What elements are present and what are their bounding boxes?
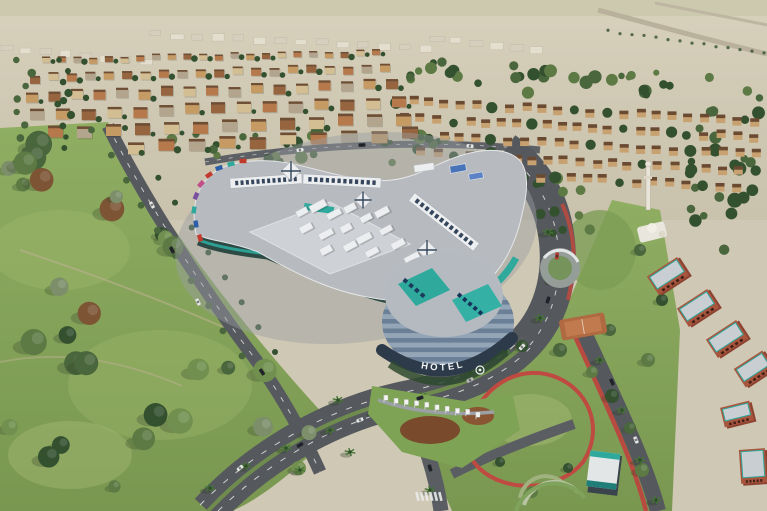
tree-highlight <box>629 424 634 429</box>
apartment-roof <box>396 114 411 117</box>
villa-roof <box>573 122 582 126</box>
villa-roof <box>583 174 592 178</box>
flag <box>425 402 429 407</box>
apartment-roof <box>159 70 169 72</box>
tree-highlight <box>60 438 68 446</box>
apartment-roof <box>251 83 263 85</box>
distant-block <box>295 39 306 44</box>
apartment-roof <box>141 72 151 74</box>
villa-roof <box>536 174 545 178</box>
apartment-roof <box>42 57 50 59</box>
window-dash <box>272 178 275 183</box>
apartment-roof <box>139 90 151 92</box>
tree-highlight <box>8 421 15 428</box>
car <box>296 148 303 152</box>
roadside-tree <box>108 152 115 159</box>
apartment-roof <box>168 54 176 56</box>
apartment-roof <box>366 98 380 100</box>
distant-tree <box>642 34 645 37</box>
apartment-roof <box>274 85 286 87</box>
apartment-roof <box>222 119 237 122</box>
street-tree <box>324 125 331 132</box>
villa-roof <box>559 155 568 159</box>
street-tree <box>77 77 83 83</box>
street-tree <box>236 145 241 150</box>
forest-tree <box>425 62 437 74</box>
street-tree <box>261 72 267 78</box>
apartment-roof <box>196 69 206 71</box>
street-tree <box>83 95 89 101</box>
villa-roof <box>752 149 761 153</box>
avenue-tree <box>63 134 68 139</box>
apartment-roof <box>164 122 179 125</box>
window-dash <box>240 180 243 185</box>
street-tree <box>81 58 87 64</box>
apartment-roof <box>340 100 354 102</box>
apartment-roof <box>219 136 235 139</box>
street-tree <box>151 76 156 81</box>
villa-roof <box>537 104 546 108</box>
villa-roof <box>481 119 490 123</box>
distant-tree <box>738 48 741 51</box>
apartment-roof <box>85 72 95 74</box>
villa-tree <box>619 125 627 133</box>
villa-tree <box>570 105 579 114</box>
villa-roof <box>497 118 506 122</box>
tree-highlight <box>58 280 66 288</box>
window-dash <box>256 179 259 184</box>
window-dash <box>314 177 317 182</box>
apartment-roof <box>380 64 390 66</box>
apartment-roof <box>402 126 418 129</box>
apartment-roof <box>122 71 132 73</box>
villa-roof <box>415 113 424 117</box>
villa-roof <box>570 141 579 145</box>
villa-roof <box>632 180 641 184</box>
apartment-roof <box>104 72 114 74</box>
tree-highlight <box>154 406 165 417</box>
distant-block <box>20 48 31 54</box>
roadside-tree <box>123 177 130 184</box>
apartment-roof <box>152 54 160 56</box>
apartment-roof <box>309 51 317 53</box>
tree-highlight <box>88 305 98 315</box>
flag <box>456 408 460 413</box>
villa-roof <box>715 183 724 187</box>
street-tree <box>286 91 292 97</box>
villa-roof <box>567 173 576 177</box>
forest-tree <box>705 73 714 82</box>
avenue-tree <box>54 101 61 108</box>
villa-roof <box>472 100 481 104</box>
avenue-tree <box>21 121 28 128</box>
street-tree <box>365 52 370 57</box>
window-dash <box>749 480 751 483</box>
distant-block <box>450 37 461 43</box>
car-glass <box>469 145 471 148</box>
street-tree <box>199 110 204 115</box>
palm-crown <box>620 408 623 411</box>
distant-tree <box>606 29 609 32</box>
window-dash <box>355 179 358 184</box>
car-glass <box>299 149 301 152</box>
apartment-roof <box>325 52 333 54</box>
distant-block <box>192 34 203 40</box>
villa-tree <box>697 180 708 191</box>
apartment-roof <box>278 52 286 54</box>
villa-roof <box>537 137 546 141</box>
hotel-logo-dot <box>479 369 482 372</box>
villa-roof <box>467 117 476 121</box>
window-dash <box>262 179 265 184</box>
villa-roof <box>527 157 536 161</box>
apartment-roof <box>121 57 129 59</box>
apartment-roof <box>185 103 199 105</box>
apartment-roof <box>177 70 187 72</box>
distant-tree <box>666 38 669 41</box>
villa-roof <box>732 184 741 188</box>
roadside-tree <box>272 349 278 355</box>
buffer-tree <box>585 224 595 234</box>
window-dash <box>246 180 249 185</box>
street-tree <box>398 85 404 91</box>
apartment-roof <box>105 56 113 58</box>
distant-tree <box>726 46 729 49</box>
brick-block <box>677 288 722 329</box>
tree-highlight <box>178 411 189 422</box>
apartment-roof <box>309 117 324 120</box>
apartment-roof <box>94 90 106 92</box>
window-dash <box>337 179 340 184</box>
distant-tree <box>762 51 765 54</box>
street-tree <box>381 52 386 57</box>
villa-roof <box>619 111 628 115</box>
flag <box>404 400 408 405</box>
window-dash <box>757 479 759 482</box>
window-dash <box>326 178 329 183</box>
apartment-roof <box>73 57 81 59</box>
tree-highlight <box>641 465 647 471</box>
flag <box>394 398 398 403</box>
palm-crown <box>298 468 301 471</box>
street-tree <box>348 54 354 60</box>
facade-color-panel <box>240 159 247 163</box>
apartment-roof <box>49 92 61 94</box>
window-dash <box>308 177 311 182</box>
apartment-roof <box>26 93 38 95</box>
forest-tree <box>568 72 579 83</box>
tree-highlight <box>37 134 49 146</box>
villa-roof <box>440 132 449 136</box>
distant-block <box>378 43 390 50</box>
roadside-tree <box>154 227 161 234</box>
tree-highlight <box>661 296 666 301</box>
street-tree <box>96 76 101 81</box>
villa-roof <box>652 111 661 115</box>
forest-tree <box>719 244 729 254</box>
tree-highlight <box>609 326 614 331</box>
villa-tree <box>449 119 458 128</box>
car <box>358 143 365 147</box>
aerial-scene: HOTEL <box>0 0 767 511</box>
villa-roof <box>593 160 602 164</box>
villa-roof <box>598 174 607 178</box>
palm-crown <box>598 358 601 361</box>
apartment-roof <box>263 101 277 103</box>
distant-block <box>233 35 243 41</box>
forest-tree <box>509 61 518 70</box>
street-tree <box>39 99 44 104</box>
street-tree <box>96 116 102 122</box>
palm-crown <box>428 488 431 491</box>
apartment-roof <box>189 139 205 142</box>
villa-roof <box>699 132 708 136</box>
street-tree <box>205 147 211 153</box>
tree-highlight <box>197 361 207 371</box>
villa-roof <box>424 97 433 101</box>
brick-block <box>734 349 767 389</box>
distant-tree <box>750 50 753 53</box>
mulch-bed <box>400 416 460 444</box>
avenue-tree <box>67 111 75 119</box>
roadside-tree <box>172 200 178 206</box>
street-tree <box>207 56 212 61</box>
apartment-roof <box>214 69 224 71</box>
villa-roof <box>604 142 613 146</box>
apartment-roof <box>161 86 173 88</box>
tree-highlight <box>559 345 565 351</box>
avenue-tree <box>56 57 62 63</box>
villa-roof <box>736 148 745 152</box>
block-roof <box>741 450 765 477</box>
distant-tree <box>630 33 633 36</box>
roadside-tree <box>155 175 161 181</box>
distant-block <box>490 42 503 49</box>
avenue-tree <box>27 69 36 78</box>
forest-tree <box>626 74 632 80</box>
street-tree <box>280 72 286 78</box>
avenue-tree <box>61 145 67 151</box>
apartment-roof <box>82 109 96 111</box>
villa-tree <box>486 102 497 113</box>
apartment-roof <box>341 52 349 54</box>
apartment-roof <box>128 142 144 145</box>
apartment-roof <box>314 98 328 100</box>
distant-block <box>316 39 328 45</box>
tree-highlight <box>262 419 271 428</box>
apartment-roof <box>193 122 208 125</box>
apartment-roof <box>293 51 301 53</box>
avenue-tree <box>13 57 20 64</box>
apartment-roof <box>233 66 243 68</box>
villa-roof <box>750 118 759 122</box>
forest-tree <box>527 68 539 80</box>
villa-roof <box>520 138 529 142</box>
aerial-render-mall-development: HOTEL <box>0 0 767 511</box>
tree-highlight <box>23 154 34 165</box>
tree-highlight <box>499 458 504 463</box>
buffer-tree <box>558 226 566 234</box>
park-pavilion <box>585 450 622 496</box>
street-tree <box>375 85 382 92</box>
apartment-roof <box>106 124 121 127</box>
villa-roof <box>543 120 552 124</box>
distant-block <box>254 37 266 44</box>
villa-roof <box>749 134 758 138</box>
distant-block <box>530 47 542 54</box>
distant-block <box>510 45 524 51</box>
apartment-roof <box>341 81 353 83</box>
palm-crown <box>348 450 351 453</box>
apartment-roof <box>289 101 303 103</box>
street-tree <box>303 109 308 114</box>
roadside-tree <box>122 125 128 131</box>
forest-tree <box>643 91 651 99</box>
apartment-roof <box>108 107 122 109</box>
window-dash <box>349 179 352 184</box>
window-dash <box>278 178 281 183</box>
car-glass <box>361 144 363 147</box>
villa-tree <box>485 134 496 145</box>
villa-roof <box>637 109 646 113</box>
street-tree <box>252 109 257 114</box>
palm-crown <box>328 428 331 431</box>
distant-tree <box>714 45 717 48</box>
forest-tree <box>653 70 659 76</box>
distant-block <box>171 34 184 40</box>
villa-tree <box>615 179 624 188</box>
forest-tree <box>544 64 557 77</box>
villa-roof <box>456 101 465 105</box>
flag <box>384 395 388 400</box>
tree-highlight <box>115 192 121 198</box>
apartment-roof <box>206 86 218 88</box>
villa-roof <box>588 124 597 128</box>
floor-band <box>378 338 518 343</box>
villa-roof <box>667 111 676 115</box>
apartment-roof <box>116 88 128 90</box>
apartment-roof <box>184 86 196 88</box>
apartment-roof <box>288 65 298 67</box>
apartment-roof <box>262 53 270 55</box>
apartment-roof <box>367 114 382 117</box>
street-tree <box>150 96 156 102</box>
forest-tree <box>510 72 521 83</box>
roadside-tree <box>239 353 246 360</box>
distant-tree <box>618 32 621 35</box>
tree-highlight <box>66 328 74 336</box>
apartment-roof <box>386 79 398 81</box>
brick-block <box>720 400 756 429</box>
apartment-roof <box>392 96 406 98</box>
apartment-roof <box>229 87 241 89</box>
villa-roof <box>622 162 631 166</box>
villa-roof <box>576 158 585 162</box>
street-tree <box>225 74 230 79</box>
flag <box>415 401 419 406</box>
avenue-tree <box>64 89 72 97</box>
villa-roof <box>503 138 512 142</box>
buffer-tree <box>576 185 586 195</box>
distant-block <box>150 30 161 35</box>
buffer-tree <box>535 209 545 219</box>
car-glass <box>556 255 559 257</box>
tree-highlight <box>263 362 273 372</box>
apartment-roof <box>356 50 364 52</box>
villa-roof <box>523 102 532 106</box>
brick-block <box>739 448 767 486</box>
apartment-roof <box>158 139 174 142</box>
villa-roof <box>455 133 464 137</box>
villa-roof <box>681 181 690 185</box>
street-tree <box>113 59 118 64</box>
forest-tree <box>689 214 701 226</box>
window-dash <box>332 178 335 183</box>
apartment-roof <box>280 118 295 121</box>
apartment-roof <box>30 109 44 111</box>
villa-roof <box>620 144 629 148</box>
window-dash <box>235 181 238 186</box>
forest-tree <box>437 57 446 66</box>
apartment-roof <box>343 67 353 69</box>
tree-highlight <box>84 354 95 365</box>
apartment-roof <box>251 119 266 122</box>
villa-tree <box>685 164 697 176</box>
apartment-roof <box>251 68 261 70</box>
villa-roof <box>732 117 741 121</box>
street-tree <box>132 75 138 81</box>
palm-crown <box>638 458 641 461</box>
window-dash <box>251 180 254 185</box>
avenue-tree <box>14 109 20 115</box>
forest-tree <box>606 74 618 86</box>
forest-tree <box>714 192 724 202</box>
street-tree <box>205 73 212 80</box>
villa-roof <box>733 131 742 135</box>
apartment-roof <box>56 108 70 110</box>
villa-tree <box>586 140 596 150</box>
villa-roof <box>512 119 521 123</box>
palm-crown <box>284 446 287 449</box>
tree-highlight <box>591 368 596 373</box>
forest-tree <box>415 67 422 74</box>
palm-crown <box>208 486 211 489</box>
avenue-tree <box>65 68 71 74</box>
street-tree <box>51 59 56 64</box>
avenue-tree <box>60 79 67 86</box>
apartment-roof <box>325 66 335 68</box>
apartment-roof <box>296 84 308 86</box>
apartment-roof <box>133 107 147 109</box>
window-dash <box>746 480 748 483</box>
villa-tree <box>746 184 758 196</box>
apartment-roof <box>211 102 225 104</box>
villa-roof <box>471 134 480 138</box>
palm-crown <box>336 398 339 401</box>
distant-block <box>470 40 483 46</box>
street-tree <box>191 55 198 62</box>
villa-roof <box>700 114 709 118</box>
apartment-roof <box>306 65 316 67</box>
horizon-band <box>0 0 767 16</box>
tree-highlight <box>47 449 57 459</box>
distant-block <box>275 38 287 44</box>
roadside-tree <box>220 327 227 334</box>
forest-tree <box>700 212 708 220</box>
flag <box>445 406 449 411</box>
brick-block <box>706 319 751 360</box>
villa-roof <box>665 178 674 182</box>
